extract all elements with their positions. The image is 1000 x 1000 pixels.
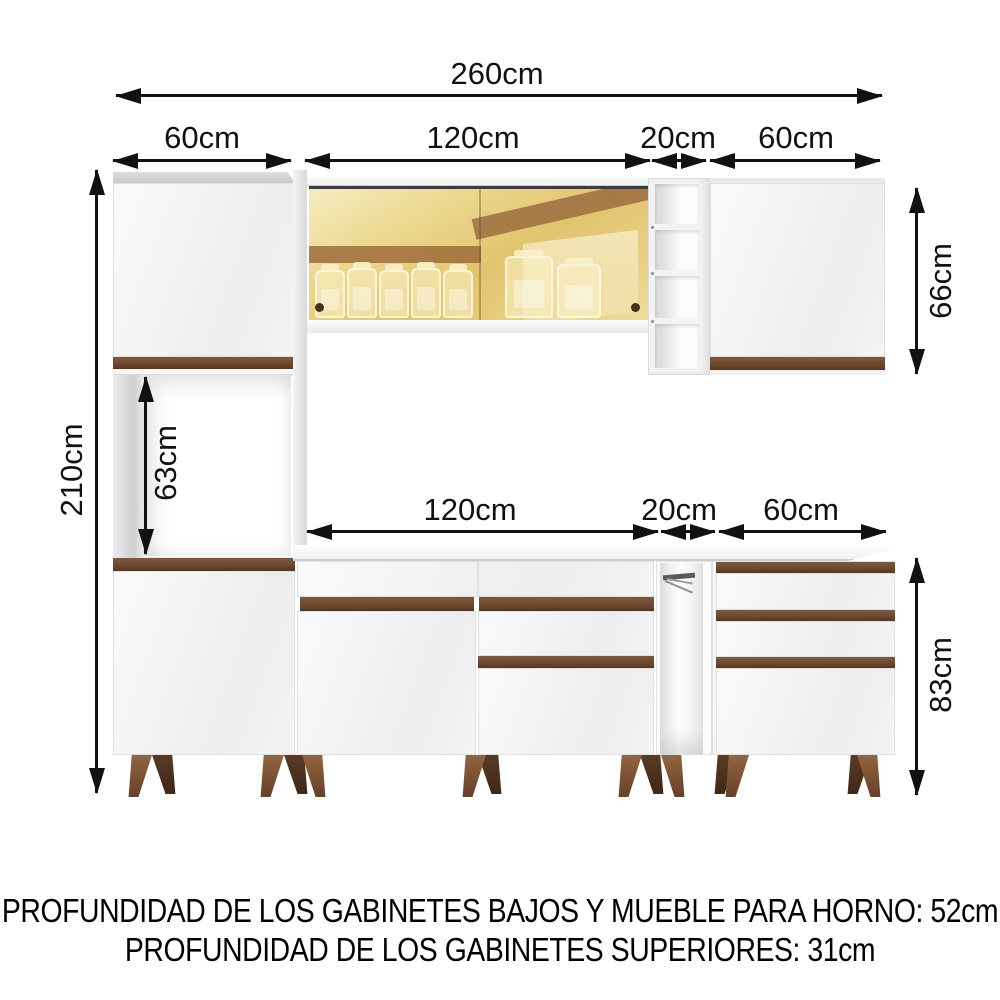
shelf-pin: [651, 226, 654, 229]
tower-side-panel: [293, 170, 307, 560]
counter-handle-left: [300, 597, 474, 611]
label-base-cabinet-height: 83cm: [923, 637, 959, 713]
drawer-handle-2: [716, 610, 895, 621]
counter-handle-right: [479, 597, 654, 611]
label-oven-height: 63cm: [148, 425, 184, 501]
countertop: [293, 545, 890, 561]
glass-cabinet-bottom-frame: [307, 320, 650, 333]
counter-right-drawer-1: [478, 611, 654, 656]
jar: [411, 268, 441, 318]
arrow-oven-height: [144, 377, 147, 554]
label-lower-20: 20cm: [641, 492, 717, 528]
jar: [347, 268, 377, 318]
kitchen-dimension-diagram: 260cm 60cm 120cm 20cm 60cm 210cm 63cm 66…: [0, 0, 1000, 1000]
right-wall-cabinet-handle: [710, 357, 885, 370]
arrow-upper-120: [305, 159, 650, 162]
arrow-upper-right-60: [710, 159, 880, 162]
base-open-tower: [656, 561, 712, 755]
counter-right-drawer-2: [478, 668, 654, 755]
right-wall-cabinet-door: [710, 183, 885, 357]
base-open-tower-interior: [660, 563, 703, 755]
left-tower-top: [113, 172, 295, 183]
depth-note-upper-cabinets: PROFUNDIDAD DE LOS GABINETES SUPERIORES:…: [125, 931, 875, 969]
label-upper-right-60: 60cm: [758, 120, 834, 156]
shelf-pin: [651, 272, 654, 275]
glass-door-knob-right: [631, 303, 640, 312]
drawer-front-1: [716, 573, 895, 610]
shelf-cell: [655, 230, 699, 270]
arrow-lower-20: [661, 530, 715, 533]
cabinet-leg: [640, 755, 666, 794]
glass-doors: [309, 186, 648, 323]
arrow-base-cabinet-height: [915, 558, 918, 795]
drawer-front-3: [716, 668, 895, 755]
shelf-pin: [651, 320, 654, 323]
depth-note-base-cabinets: PROFUNDIDAD DE LOS GABINETES BAJOS Y MUE…: [2, 892, 998, 930]
jar: [557, 264, 601, 318]
open-shelf-unit: [648, 178, 710, 375]
label-total-width: 260cm: [450, 56, 543, 92]
drawer-handle-1: [716, 562, 895, 573]
counter-right-drawer-handle: [478, 656, 654, 668]
right-wall-cabinet-base: [710, 370, 885, 375]
glass-door-seam: [479, 189, 481, 321]
cabinet-leg: [661, 755, 687, 797]
left-tower-upper-door: [113, 183, 295, 357]
counter-left-door: [297, 611, 476, 755]
right-wall-cabinet: [710, 178, 885, 375]
glass-cabinet-top-frame: [307, 178, 650, 186]
left-tower-lower-handle: [113, 558, 295, 571]
cabinet-leg: [258, 755, 284, 797]
arrow-upper-left-60: [113, 159, 291, 162]
label-upper-cabinet-height: 66cm: [923, 243, 959, 319]
drawer-handle-3: [716, 657, 895, 668]
cabinet-leg: [616, 755, 642, 797]
label-lower-60: 60cm: [763, 492, 839, 528]
cabinet-leg: [460, 755, 486, 797]
shelf-cell: [655, 324, 699, 368]
arrow-total-width: [116, 94, 882, 97]
counter-drawer-seam: [477, 561, 479, 597]
label-lower-120: 120cm: [423, 492, 516, 528]
drawer-front-2: [716, 621, 895, 657]
glass-reflection-band-left: [309, 246, 481, 263]
arrow-lower-120: [307, 530, 658, 533]
left-tower-upper-handle: [113, 357, 295, 369]
glass-door-knob-left: [315, 303, 324, 312]
label-upper-20: 20cm: [640, 120, 716, 156]
shelf-cell: [655, 276, 699, 318]
cabinet-leg: [126, 755, 152, 797]
arrow-upper-20: [652, 159, 706, 162]
arrow-lower-60: [719, 530, 886, 533]
label-upper-120: 120cm: [426, 120, 519, 156]
label-total-height: 210cm: [54, 423, 90, 516]
counter-top-drawer: [297, 561, 654, 597]
left-tower-base-door: [113, 571, 295, 755]
glass-wall-cabinet: [307, 178, 650, 333]
cabinet-leg: [152, 755, 178, 794]
arrow-upper-cabinet-height: [915, 188, 918, 374]
label-upper-left-60: 60cm: [164, 120, 240, 156]
shelf-cell: [655, 184, 699, 224]
jar: [379, 270, 409, 318]
jar: [505, 256, 553, 318]
jar: [443, 270, 473, 318]
arrow-total-height: [95, 170, 98, 793]
